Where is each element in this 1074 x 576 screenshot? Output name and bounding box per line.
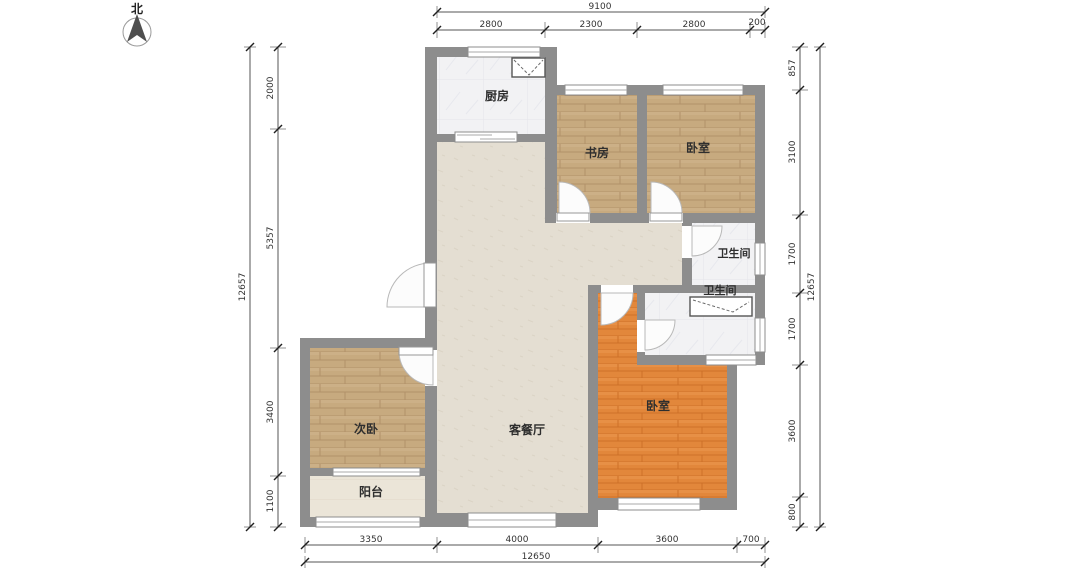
living-window bbox=[468, 513, 556, 527]
dim-bottom-seg-2: 4000 bbox=[506, 535, 529, 545]
dim-bottom: 3350 4000 3600 700 12650 bbox=[301, 535, 769, 568]
kitchen-casement-window bbox=[512, 58, 545, 77]
secondary-bedroom-window bbox=[333, 468, 420, 476]
bath-casement-window bbox=[690, 297, 752, 316]
dim-bottom-seg-1: 3350 bbox=[360, 535, 383, 545]
dim-right-total: 12657 bbox=[807, 273, 817, 302]
dim-top-seg-4: 200 bbox=[748, 18, 765, 28]
secondary-bedroom-label: 次卧 bbox=[354, 421, 378, 436]
dim-top: 9100 2800 2300 2800 200 bbox=[433, 2, 769, 38]
dim-right-seg-4: 1700 bbox=[788, 317, 798, 340]
dim-left-seg-3: 3400 bbox=[266, 400, 276, 423]
dim-right-seg-2: 3100 bbox=[788, 140, 798, 163]
bedroom-top-label: 卧室 bbox=[686, 140, 710, 155]
living-dining-label: 客餐厅 bbox=[508, 422, 545, 437]
bedroom-top-window bbox=[663, 85, 743, 95]
bath-bottom-window bbox=[706, 355, 756, 365]
dim-left-seg-2: 5357 bbox=[266, 227, 276, 250]
dim-bottom-seg-4: 700 bbox=[742, 535, 759, 545]
dim-left-seg-1: 2000 bbox=[266, 76, 276, 99]
balcony-label: 阳台 bbox=[359, 484, 383, 499]
dim-bottom-total: 12650 bbox=[522, 552, 551, 562]
dim-right-seg-5: 3600 bbox=[788, 419, 798, 442]
kitchen-slider bbox=[455, 132, 517, 142]
kitchen-label: 厨房 bbox=[485, 88, 509, 103]
kitchen-window bbox=[468, 47, 540, 57]
dim-right-seg-1: 857 bbox=[788, 59, 798, 76]
dim-left-seg-4: 1100 bbox=[266, 489, 276, 512]
study-window bbox=[565, 85, 627, 95]
dim-left-total: 12657 bbox=[238, 273, 248, 302]
master-bedroom-window bbox=[618, 498, 700, 510]
dim-right-seg-6: 800 bbox=[788, 503, 798, 520]
study-label: 书房 bbox=[585, 145, 609, 160]
floor-plan-svg: 厨房 书房 卧室 卫生间 卫生间 客餐厅 卧室 次卧 阳台 9100 2800 … bbox=[0, 0, 1074, 576]
north-label: 北 bbox=[131, 1, 143, 16]
master-bedroom-label: 卧室 bbox=[646, 398, 670, 413]
dim-bottom-seg-3: 3600 bbox=[656, 535, 679, 545]
entry-door bbox=[387, 263, 436, 307]
north-indicator: 北 bbox=[123, 1, 151, 46]
north-arrow-icon bbox=[127, 14, 147, 42]
bath-upper-right-window bbox=[755, 243, 765, 275]
dim-right: 857 3100 1700 1700 3600 800 12657 bbox=[788, 43, 826, 531]
dim-right-seg-3: 1700 bbox=[788, 242, 798, 265]
dim-left: 2000 5357 3400 1100 12657 bbox=[238, 43, 286, 531]
bath-lower-label: 卫生间 bbox=[704, 283, 737, 297]
floor-plan-canvas: 厨房 书房 卧室 卫生间 卫生间 客餐厅 卧室 次卧 阳台 9100 2800 … bbox=[0, 0, 1074, 576]
dim-top-seg-1: 2800 bbox=[480, 20, 503, 30]
dim-top-total: 9100 bbox=[589, 2, 612, 12]
bath-upper-label: 卫生间 bbox=[718, 246, 751, 260]
bath-lower-right-window bbox=[755, 318, 765, 352]
dim-top-seg-2: 2300 bbox=[580, 20, 603, 30]
balcony-window bbox=[316, 517, 420, 527]
dim-top-seg-3: 2800 bbox=[683, 20, 706, 30]
